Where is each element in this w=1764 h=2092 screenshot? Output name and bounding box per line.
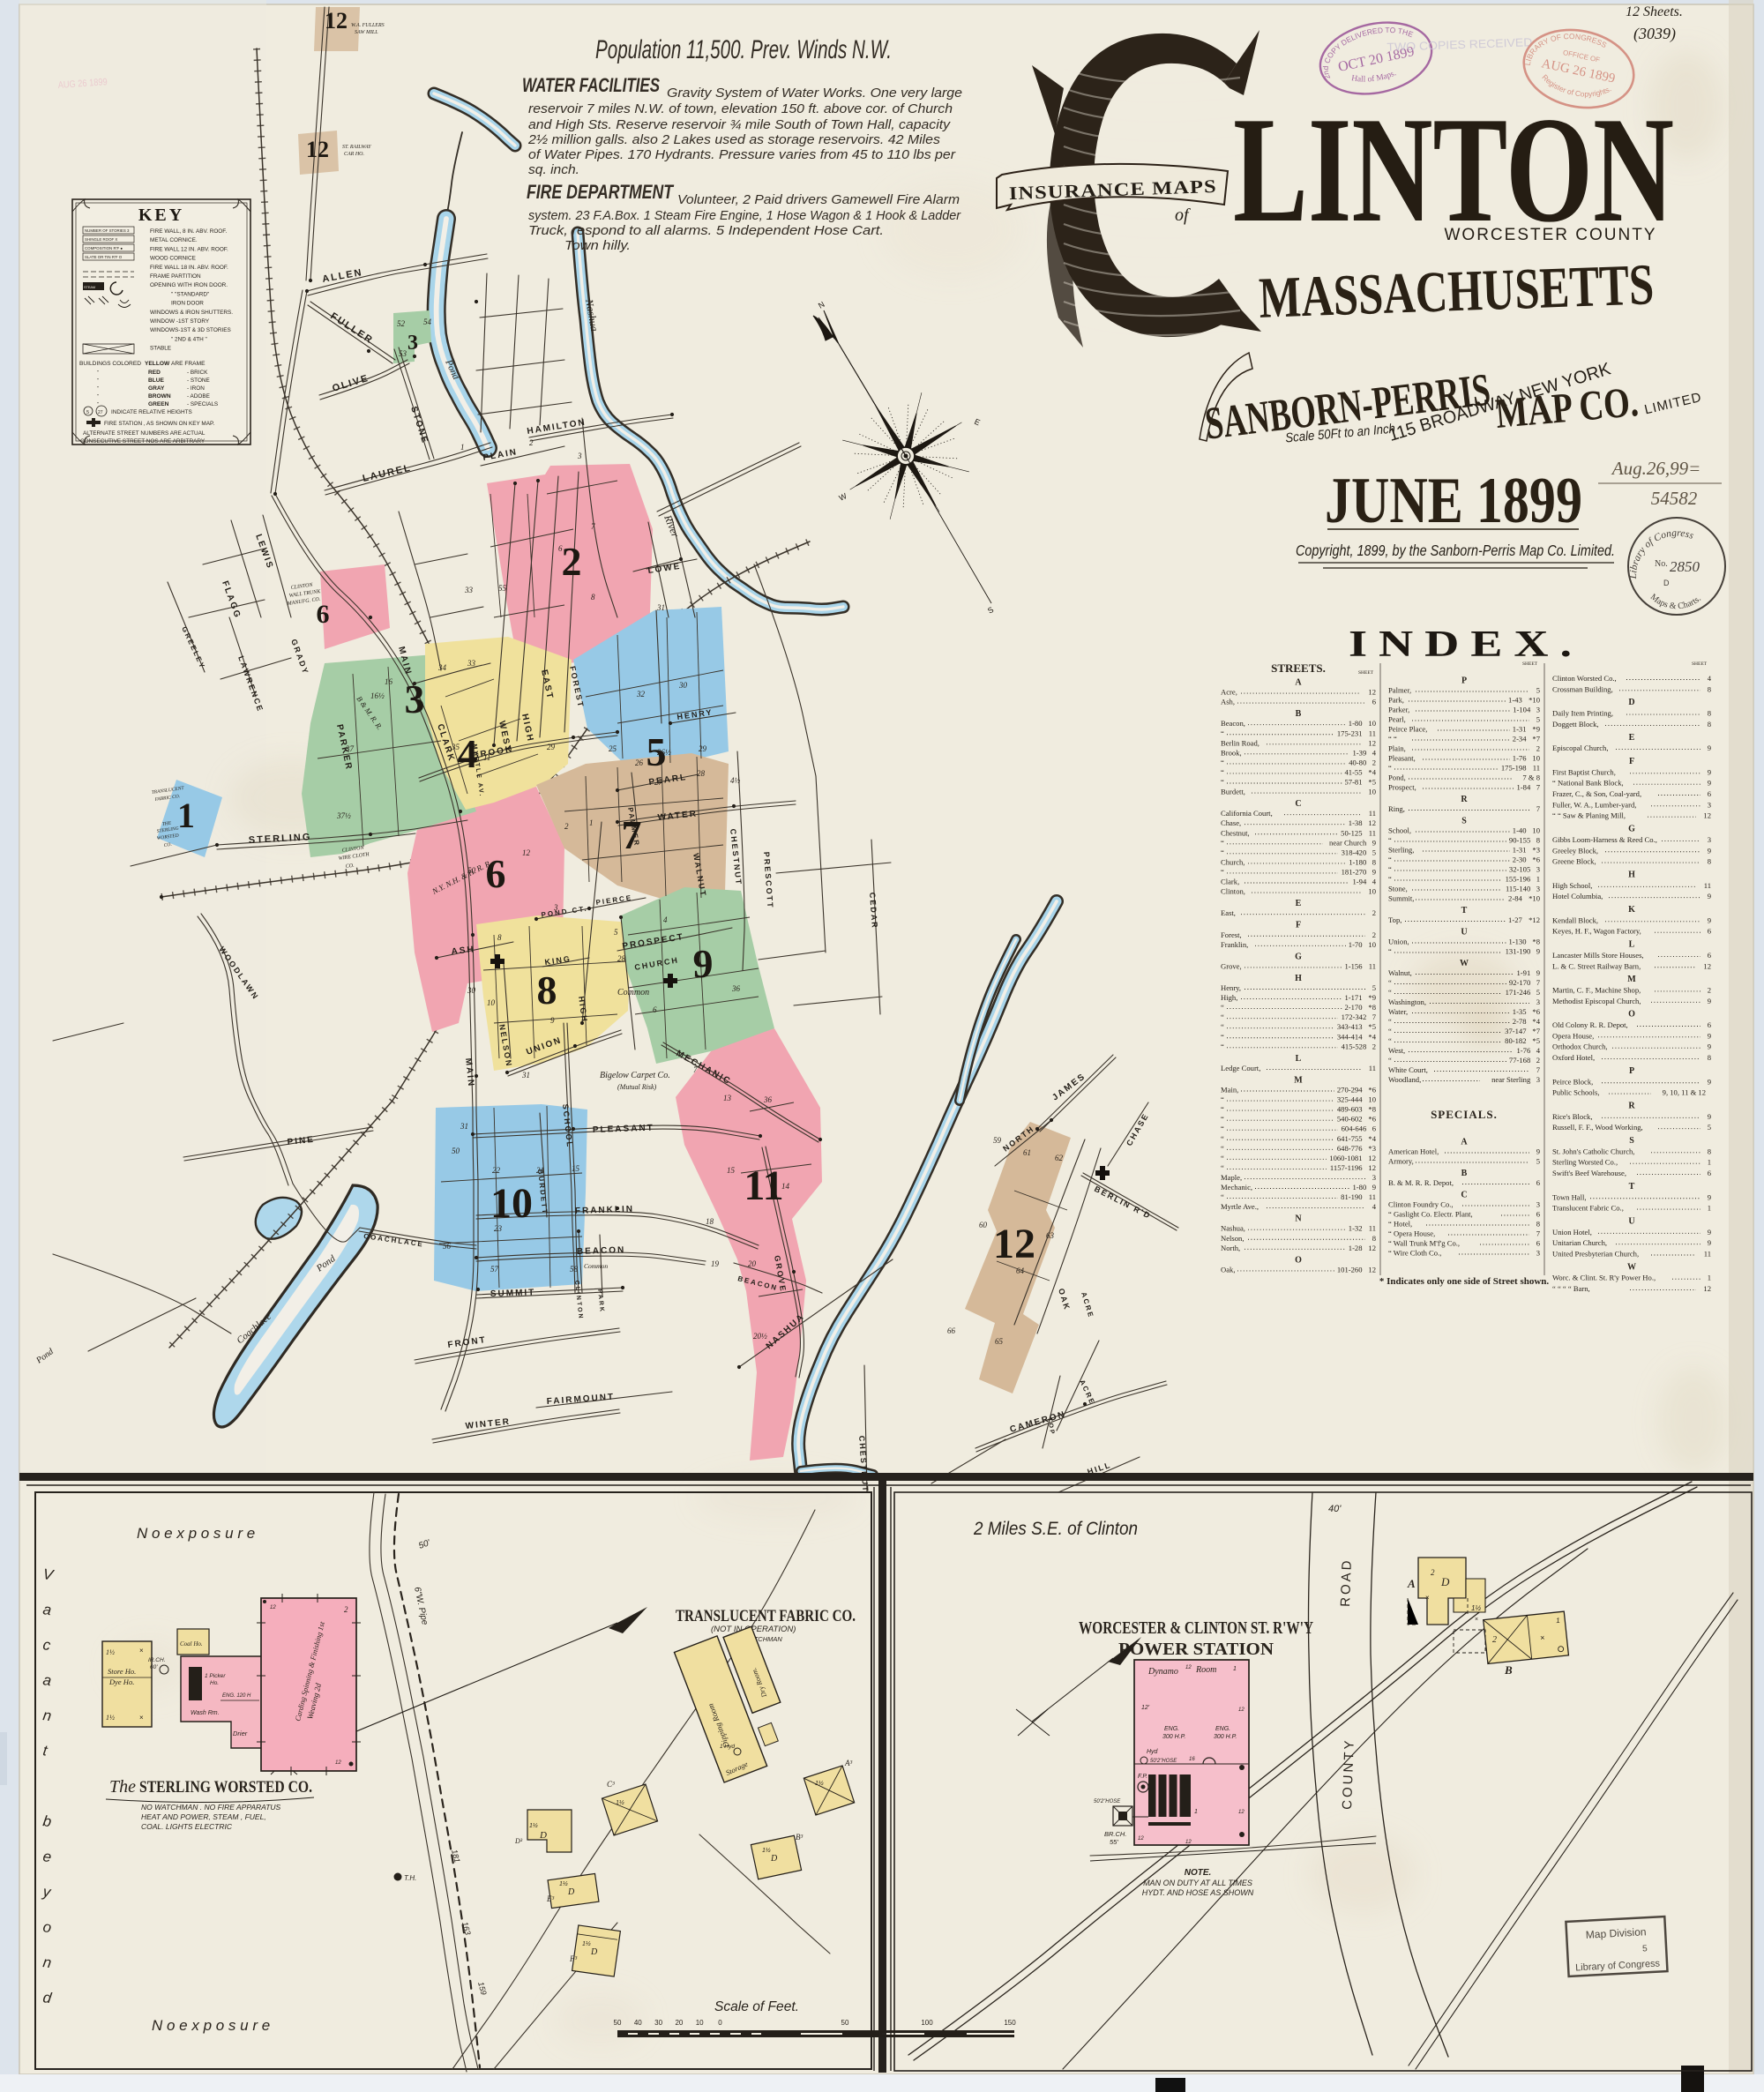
svg-text:5: 5: [1372, 983, 1376, 992]
svg-text:": ": [97, 378, 99, 384]
svg-text:9, 10, 11 & 12: 9, 10, 11 & 12: [1663, 1088, 1706, 1097]
svg-text:": ": [97, 370, 99, 376]
svg-text:COAL. LIGHTS ELECTRIC: COAL. LIGHTS ELECTRIC: [141, 1822, 233, 1831]
svg-text:*8: *8: [1368, 1003, 1376, 1012]
svg-text:18: 18: [706, 1217, 714, 1226]
svg-text:21: 21: [536, 1166, 544, 1175]
svg-text:11: 11: [1369, 728, 1376, 737]
svg-text:1: 1: [1194, 1809, 1198, 1815]
svg-text:*10: *10: [1529, 696, 1540, 705]
svg-text:9: 9: [1536, 968, 1540, 977]
svg-text:8: 8: [497, 933, 502, 942]
svg-text:Forest,: Forest,: [1221, 930, 1242, 939]
svg-text:COMPOSITION R'F ●: COMPOSITION R'F ●: [85, 246, 123, 250]
svg-text:12: 12: [1368, 1244, 1376, 1252]
svg-text:5: 5: [1372, 848, 1376, 856]
svg-text:“: “: [1221, 767, 1224, 776]
svg-text:12: 12: [1368, 1163, 1376, 1172]
svg-text:26½: 26½: [657, 748, 671, 757]
svg-text:33: 33: [464, 586, 474, 594]
svg-text:Beacon,: Beacon,: [1221, 719, 1245, 728]
svg-text:1½: 1½: [762, 1847, 771, 1854]
svg-text:“ “ Saw & Planing Mill,: “ “ Saw & Planing Mill,: [1552, 811, 1626, 820]
svg-text:63: 63: [1046, 1231, 1055, 1240]
svg-text:D: D: [1663, 579, 1670, 587]
svg-text:*12: *12: [1529, 915, 1540, 924]
svg-text:Ring,: Ring,: [1388, 804, 1405, 813]
svg-text:Common: Common: [584, 1262, 608, 1270]
svg-text:6: 6: [317, 600, 330, 629]
svg-text:H: H: [1628, 870, 1635, 879]
svg-text:(Mutual Risk): (Mutual Risk): [617, 1083, 657, 1091]
svg-text:2: 2: [1492, 1635, 1497, 1645]
svg-text:Maple,: Maple,: [1221, 1173, 1242, 1182]
svg-text:2: 2: [1536, 744, 1540, 753]
svg-text:2: 2: [1536, 1056, 1540, 1065]
svg-text:1-35: 1-35: [1513, 1007, 1527, 1016]
svg-text:Translucent Fabric Co.,: Translucent Fabric Co.,: [1552, 1204, 1624, 1213]
svg-text:8: 8: [1708, 857, 1711, 866]
svg-text:11: 11: [483, 753, 490, 762]
svg-text:30: 30: [654, 2019, 662, 2027]
svg-text:30: 30: [678, 681, 688, 690]
svg-text:STEAM: STEAM: [84, 286, 95, 289]
svg-text:SUMMIT: SUMMIT: [490, 1288, 536, 1299]
svg-text:32-105: 32-105: [1509, 865, 1530, 874]
svg-text:ENG.: ENG.: [1164, 1726, 1179, 1732]
svg-text:*4: *4: [1532, 1017, 1540, 1026]
svg-text:57-81: 57-81: [1344, 778, 1362, 787]
svg-text:" "STANDARD": " "STANDARD": [171, 291, 209, 297]
svg-text:BEACON: BEACON: [577, 1245, 626, 1257]
svg-text:“: “: [1221, 1154, 1224, 1162]
svg-text:STABLE: STABLE: [150, 346, 171, 352]
svg-text:R: R: [1628, 1101, 1635, 1110]
svg-text:No.: No.: [1655, 559, 1668, 569]
svg-text:1-180: 1-180: [1349, 857, 1366, 866]
svg-text:3: 3: [1708, 800, 1711, 809]
svg-text:1-80: 1-80: [1353, 1183, 1367, 1192]
svg-text:8: 8: [537, 968, 557, 1012]
svg-text:SHINGLE ROOF X: SHINGLE ROOF X: [85, 237, 117, 242]
svg-text:B: B: [1296, 709, 1302, 719]
svg-text:Church,: Church,: [1221, 857, 1245, 866]
svg-text:12: 12: [1368, 738, 1376, 747]
svg-text:1 Picker: 1 Picker: [205, 1673, 226, 1679]
svg-text:12: 12: [270, 1605, 276, 1610]
svg-text:9: 9: [1536, 1147, 1540, 1156]
svg-text:10: 10: [696, 2019, 704, 2027]
svg-text:8: 8: [1708, 709, 1711, 718]
svg-text:Dynamo: Dynamo: [1147, 1667, 1178, 1677]
svg-text:9: 9: [1708, 1238, 1711, 1247]
svg-text:*6: *6: [1368, 1115, 1376, 1124]
svg-text:system. 23 F.A.Box. 1 Steam Fi: system. 23 F.A.Box. 1 Steam Fire Engine,…: [528, 208, 961, 223]
svg-text:D: D: [590, 1947, 598, 1957]
svg-text:3: 3: [1708, 835, 1711, 844]
svg-text:*6: *6: [1368, 1086, 1376, 1095]
svg-text:300 H.P.: 300 H.P.: [1162, 1734, 1185, 1740]
svg-text:American Hotel,: American Hotel,: [1388, 1147, 1439, 1156]
svg-text:STERLING WORSTED CO.: STERLING WORSTED CO.: [139, 1778, 312, 1797]
svg-text:10: 10: [487, 998, 496, 1007]
svg-text:4½: 4½: [730, 776, 741, 785]
svg-text:“: “: [1221, 1042, 1224, 1050]
svg-text:- IRON: - IRON: [187, 385, 205, 392]
svg-text:19: 19: [711, 1259, 720, 1268]
svg-text:415-528: 415-528: [1342, 1042, 1367, 1050]
svg-text:1: 1: [1708, 1158, 1711, 1167]
svg-text:54: 54: [423, 318, 432, 326]
svg-text:Henry,: Henry,: [1221, 983, 1241, 992]
svg-text:7: 7: [1536, 783, 1541, 792]
svg-text:Hyd: Hyd: [1147, 1749, 1159, 1755]
svg-text:CONSECUTIVE STREET NOS ARE ARB: CONSECUTIVE STREET NOS ARE ARBITRARY: [80, 438, 206, 445]
svg-text:Orthodox Church,: Orthodox Church,: [1552, 1042, 1608, 1051]
svg-text:11: 11: [1704, 1250, 1711, 1259]
svg-text:9: 9: [1708, 767, 1711, 776]
svg-text:50: 50: [841, 2019, 849, 2027]
svg-text:Unitarian Church,: Unitarian Church,: [1552, 1238, 1607, 1247]
svg-text:Sterling Worsted Co.,: Sterling Worsted Co.,: [1552, 1158, 1618, 1167]
svg-text:1½: 1½: [1471, 1604, 1481, 1612]
svg-text:D: D: [770, 1854, 778, 1864]
svg-text:2-34: 2-34: [1513, 735, 1527, 743]
svg-text:171-246: 171-246: [1506, 988, 1531, 997]
svg-text:YELLOW: YELLOW: [145, 361, 170, 367]
svg-text:1: 1: [1708, 1204, 1711, 1213]
svg-text:1-38: 1-38: [1349, 818, 1363, 827]
svg-text:2-78: 2-78: [1513, 1017, 1527, 1026]
svg-text:50: 50: [614, 2019, 622, 2027]
svg-text:INDEX.: INDEX.: [1349, 624, 1583, 665]
svg-text:Nashua,: Nashua,: [1221, 1224, 1245, 1233]
svg-text:343-413: 343-413: [1337, 1022, 1363, 1031]
svg-text:12: 12: [1703, 961, 1711, 970]
svg-text:Keyes, H. F., Wagon Factory,: Keyes, H. F., Wagon Factory,: [1552, 927, 1641, 936]
svg-text:“: “: [1221, 1022, 1224, 1031]
svg-text:7: 7: [1536, 978, 1541, 987]
svg-text:D: D: [1440, 1575, 1450, 1588]
svg-text:6: 6: [653, 1005, 657, 1014]
svg-text:56: 56: [443, 1242, 452, 1251]
svg-text:Clinton Worsted Co.,: Clinton Worsted Co.,: [1552, 674, 1617, 683]
svg-text:St. John's Catholic Church,: St. John's Catholic Church,: [1552, 1147, 1634, 1155]
svg-text:IRON DOOR: IRON DOOR: [171, 301, 204, 307]
svg-text:FIRE DEPARTMENT: FIRE DEPARTMENT: [527, 181, 674, 203]
svg-text:5: 5: [1536, 988, 1540, 997]
svg-text:*4: *4: [1368, 767, 1376, 776]
svg-text:Pearl,: Pearl,: [1388, 715, 1406, 724]
svg-text:Doggett Block,: Doggett Block,: [1552, 720, 1599, 728]
svg-text:*8: *8: [1532, 938, 1540, 946]
svg-text:3: 3: [1536, 885, 1540, 893]
svg-text:37: 37: [345, 744, 355, 753]
svg-text:The: The: [109, 1777, 136, 1797]
svg-text:“: “: [1388, 1017, 1392, 1026]
svg-text:WINDOW -1ST STORY: WINDOW -1ST STORY: [150, 318, 210, 325]
svg-text:1-43: 1-43: [1508, 696, 1522, 705]
svg-text:175-231: 175-231: [1337, 728, 1363, 737]
svg-text:FIRE WALL 18 IN. ABV. ROOF.: FIRE WALL 18 IN. ABV. ROOF.: [150, 265, 228, 271]
svg-text:16: 16: [1189, 1757, 1195, 1762]
svg-text:2: 2: [1372, 758, 1376, 766]
svg-text:9: 9: [1708, 779, 1711, 788]
svg-text:Peirce Block,: Peirce Block,: [1552, 1077, 1593, 1086]
svg-text:37½: 37½: [336, 811, 351, 820]
svg-text:5: 5: [1536, 715, 1540, 724]
svg-text:2: 2: [1372, 930, 1376, 939]
svg-text:Public Schools,: Public Schools,: [1552, 1088, 1599, 1097]
svg-text:(3039): (3039): [1633, 25, 1676, 43]
svg-text:L: L: [1629, 940, 1635, 950]
svg-text:near Church: near Church: [1329, 838, 1367, 847]
svg-text:4: 4: [458, 731, 478, 776]
svg-text:12: 12: [325, 8, 348, 34]
svg-text:Frazer, C., & Son, Coal-yard,: Frazer, C., & Son, Coal-yard,: [1552, 789, 1641, 798]
svg-text:Gibbs Loom-Harness & Reed Co.,: Gibbs Loom-Harness & Reed Co.,: [1552, 835, 1657, 844]
svg-text:“: “: [1388, 1056, 1392, 1065]
svg-text:10: 10: [1368, 788, 1376, 796]
svg-text:High School,: High School,: [1552, 881, 1592, 890]
svg-text:52: 52: [397, 319, 406, 328]
svg-text:8: 8: [1536, 836, 1540, 845]
svg-text:N o e x p o s u r e: N o e x p o s u r e: [152, 2017, 270, 2034]
svg-text:60: 60: [979, 1221, 988, 1229]
svg-text:F³: F³: [569, 1954, 577, 1963]
svg-text:Common: Common: [617, 988, 649, 997]
svg-text:10: 10: [1368, 887, 1376, 896]
svg-text:9: 9: [693, 941, 714, 986]
svg-text:1½: 1½: [582, 1940, 591, 1947]
svg-text:1-84: 1-84: [1517, 783, 1531, 792]
svg-text:2: 2: [344, 1605, 348, 1614]
svg-text:Gravity System of Water Works.: Gravity System of Water Works. One very …: [667, 86, 962, 101]
svg-text:Myrtle Ave.,: Myrtle Ave.,: [1221, 1202, 1259, 1211]
svg-text:7: 7: [1536, 804, 1541, 813]
svg-text:10: 10: [490, 1180, 533, 1227]
svg-text:Brook,: Brook,: [1221, 748, 1242, 757]
svg-text:12: 12: [1368, 1154, 1376, 1162]
svg-text:F: F: [1629, 757, 1634, 766]
svg-text:Washington,: Washington,: [1388, 997, 1426, 1006]
svg-text:10: 10: [1532, 826, 1540, 835]
svg-text:1-39: 1-39: [1353, 748, 1367, 757]
svg-text:“ Hotel,: “ Hotel,: [1388, 1220, 1412, 1229]
svg-text:“: “: [1221, 1124, 1224, 1133]
svg-text:Bigelow Carpet Co.: Bigelow Carpet Co.: [600, 1071, 670, 1080]
svg-text:Oxford Hotel,: Oxford Hotel,: [1552, 1053, 1595, 1062]
svg-text:Episcopal Church,: Episcopal Church,: [1552, 743, 1608, 752]
svg-text:9: 9: [1708, 846, 1711, 855]
svg-text:United Presbyterian Church,: United Presbyterian Church,: [1552, 1250, 1639, 1259]
svg-text:23: 23: [494, 1224, 503, 1233]
svg-text:11: 11: [1704, 881, 1711, 890]
svg-text:*4: *4: [1368, 1032, 1376, 1041]
svg-text:WOOD CORNICE: WOOD CORNICE: [150, 256, 196, 262]
svg-text:CAR HO.: CAR HO.: [344, 152, 364, 157]
svg-text:East,: East,: [1221, 908, 1236, 917]
svg-text:BR.CH.: BR.CH.: [1104, 1830, 1126, 1838]
svg-text:28: 28: [697, 769, 706, 778]
svg-text:1-130: 1-130: [1508, 938, 1526, 946]
svg-text:B. & M. R. R. Depot,: B. & M. R. R. Depot,: [1388, 1178, 1454, 1187]
svg-text:15: 15: [727, 1166, 736, 1175]
svg-text:32: 32: [636, 690, 646, 699]
svg-text:1: 1: [1708, 1274, 1711, 1282]
svg-text:8: 8: [1708, 720, 1711, 728]
svg-text:POWER STATION: POWER STATION: [1118, 1640, 1274, 1659]
svg-text:55: 55: [498, 584, 507, 593]
svg-text:White Court,: White Court,: [1388, 1065, 1428, 1074]
svg-text:D: D: [539, 1830, 547, 1841]
svg-text:SLATE OR TIN R'F O: SLATE OR TIN R'F O: [85, 255, 123, 259]
svg-text:1060-1081: 1060-1081: [1329, 1154, 1362, 1162]
svg-text:Prospect,: Prospect,: [1388, 783, 1416, 792]
svg-text:JUNE 1899: JUNE 1899: [1325, 465, 1582, 537]
svg-text:SHEET: SHEET: [1522, 661, 1538, 667]
svg-text:“: “: [1388, 764, 1392, 773]
svg-text:11: 11: [1369, 809, 1376, 818]
svg-text:300 H.P.: 300 H.P.: [1214, 1734, 1237, 1740]
svg-text:92-170: 92-170: [1509, 978, 1530, 987]
svg-text:A³: A³: [844, 1759, 852, 1767]
svg-text:“ Opera House,: “ Opera House,: [1388, 1229, 1435, 1238]
svg-text:12 Sheets.: 12 Sheets.: [1626, 4, 1683, 19]
svg-text:4: 4: [1372, 878, 1377, 886]
svg-text:2: 2: [1431, 1568, 1435, 1577]
svg-text:Swift's Beef Warehouse,: Swift's Beef Warehouse,: [1552, 1169, 1626, 1177]
svg-text:2: 2: [529, 438, 534, 447]
svg-text:W.A. FULLERS: W.A. FULLERS: [351, 23, 385, 28]
svg-text:*4: *4: [1368, 1134, 1376, 1143]
svg-text:27: 27: [654, 778, 663, 787]
svg-text:Summit,: Summit,: [1388, 894, 1414, 903]
svg-text:9: 9: [1708, 997, 1711, 1005]
svg-text:“: “: [1221, 1163, 1224, 1172]
svg-text:“: “: [1388, 1027, 1392, 1035]
svg-text:Store Ho.: Store Ho.: [108, 1667, 136, 1676]
svg-text:11: 11: [1533, 764, 1540, 773]
svg-text:9: 9: [1372, 838, 1376, 847]
svg-text:1½: 1½: [616, 1799, 624, 1806]
svg-text:S: S: [1461, 817, 1467, 826]
svg-text:FIRE WALL, 8 IN. ABV. ROOF.: FIRE WALL, 8 IN. ABV. ROOF.: [150, 228, 227, 235]
svg-text:GRAY: GRAY: [148, 385, 165, 392]
svg-text:ALTERNATE STREET NUMBERS ARE A: ALTERNATE STREET NUMBERS ARE ACTUAL: [83, 430, 206, 437]
svg-text:6: 6: [1372, 1124, 1377, 1133]
svg-text:“: “: [1221, 867, 1224, 876]
svg-text:12': 12': [1141, 1705, 1150, 1711]
svg-text:3: 3: [1536, 1075, 1540, 1084]
svg-text:*6: *6: [1532, 1007, 1540, 1016]
svg-text:12: 12: [306, 137, 329, 162]
svg-text:SHEET: SHEET: [1692, 661, 1708, 667]
svg-text:10: 10: [1368, 719, 1376, 728]
svg-text:Grove,: Grove,: [1221, 961, 1242, 970]
svg-text:2850: 2850: [1670, 558, 1700, 575]
svg-text:NOTE.: NOTE.: [1185, 1868, 1212, 1878]
svg-text:*9: *9: [1532, 725, 1540, 734]
svg-text:6: 6: [1536, 1210, 1541, 1219]
svg-text:Wash Rm.: Wash Rm.: [191, 1710, 220, 1716]
svg-text:8: 8: [1708, 1147, 1711, 1155]
svg-text:- BRICK: - BRICK: [187, 370, 208, 376]
svg-text:MAN ON DUTY AT ALL TIMES: MAN ON DUTY AT ALL TIMES: [1143, 1879, 1252, 1887]
svg-text:61: 61: [1023, 1148, 1031, 1157]
svg-text:3: 3: [1536, 997, 1540, 1006]
svg-text:Berlin Road,: Berlin Road,: [1221, 738, 1259, 747]
svg-text:*6: *6: [1532, 855, 1540, 864]
svg-text:1-91: 1-91: [1517, 968, 1531, 977]
svg-text:150: 150: [1004, 2019, 1016, 2027]
svg-text:1: 1: [460, 443, 465, 452]
svg-text:×: ×: [1425, 1594, 1430, 1602]
svg-text:OPENING WITH IRON DOOR.: OPENING WITH IRON DOOR.: [150, 282, 228, 288]
svg-text:5: 5: [1536, 1157, 1540, 1166]
svg-text:Woodland,: Woodland,: [1388, 1075, 1421, 1084]
svg-text:12: 12: [1238, 1707, 1245, 1713]
svg-text:Crossman Building,: Crossman Building,: [1552, 684, 1613, 693]
svg-text:Kendall Block,: Kendall Block,: [1552, 915, 1598, 924]
svg-text:WATER FACILITIES: WATER FACILITIES: [522, 74, 660, 96]
svg-text:6: 6: [486, 851, 506, 896]
svg-text:7: 7: [693, 1065, 698, 1074]
svg-text:3: 3: [1372, 1173, 1376, 1182]
svg-text:40': 40': [1328, 1504, 1342, 1514]
svg-text:5: 5: [1708, 1123, 1711, 1132]
svg-text:31: 31: [521, 1071, 530, 1080]
svg-text:×: ×: [1540, 1633, 1545, 1642]
svg-text:50'2"HOSE: 50'2"HOSE: [1094, 1799, 1121, 1804]
svg-text:4: 4: [1372, 1202, 1377, 1211]
svg-text:G: G: [1295, 952, 1302, 961]
svg-text:Pond,: Pond,: [1388, 773, 1406, 782]
svg-text:1 Hyd: 1 Hyd: [720, 1744, 735, 1750]
svg-text:R: R: [1461, 795, 1468, 804]
svg-text:*5: *5: [1368, 778, 1376, 787]
svg-text:1-28: 1-28: [1349, 1244, 1363, 1252]
svg-text:9: 9: [1708, 1192, 1711, 1201]
svg-text:Town hilly.: Town hilly.: [564, 238, 631, 253]
svg-text:Sterling,: Sterling,: [1388, 846, 1414, 855]
svg-text:11: 11: [1369, 828, 1376, 837]
svg-text:of: of: [1175, 205, 1191, 225]
svg-text:172-342: 172-342: [1342, 1012, 1367, 1021]
svg-text:Pleasant,: Pleasant,: [1388, 754, 1416, 763]
svg-text:Park,: Park,: [1388, 696, 1404, 705]
svg-text:1: 1: [589, 818, 594, 827]
svg-text:489-603: 489-603: [1337, 1105, 1363, 1114]
svg-text:1-27: 1-27: [1508, 915, 1522, 924]
svg-text:*3: *3: [1368, 1144, 1376, 1153]
svg-text:“: “: [1221, 1105, 1224, 1114]
svg-text:KEY: KEY: [138, 205, 184, 225]
svg-text:1-171: 1-171: [1344, 993, 1362, 1002]
svg-text:Opera House,: Opera House,: [1552, 1031, 1594, 1040]
svg-text:School,: School,: [1388, 826, 1411, 835]
svg-text:1-31: 1-31: [1513, 725, 1527, 734]
svg-text:1: 1: [1233, 1666, 1237, 1672]
svg-text:10: 10: [1368, 940, 1376, 949]
svg-text:Daily Item Printing,: Daily Item Printing,: [1552, 709, 1613, 718]
svg-text:81-190: 81-190: [1341, 1192, 1362, 1201]
svg-text:2-30: 2-30: [1513, 855, 1527, 864]
svg-text:Dye Ho.: Dye Ho.: [108, 1677, 134, 1686]
svg-text:D: D: [567, 1887, 575, 1897]
svg-text:7 & 8: 7 & 8: [1522, 773, 1540, 782]
svg-text:5: 5: [1642, 1944, 1648, 1954]
